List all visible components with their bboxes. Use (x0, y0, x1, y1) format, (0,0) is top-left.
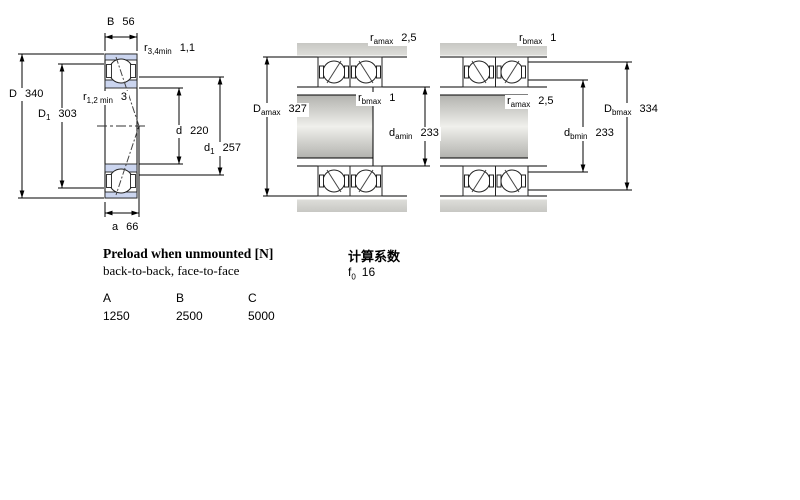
dim-value: 1,1 (180, 42, 195, 54)
calculation-factors-title: 计算系数 (348, 246, 400, 265)
dim-value: 16 (362, 265, 375, 279)
dim-subscript: amax (261, 108, 281, 117)
dim-symbol: D (253, 103, 261, 115)
dim-subscript: amax (511, 100, 531, 109)
dim-value: 233 (420, 127, 438, 139)
dim-value: 334 (640, 103, 658, 115)
preload-table: A B C 1250 2500 5000 (103, 291, 320, 323)
label-d: d220 (174, 125, 210, 138)
preload-value: 2500 (176, 309, 248, 323)
dim-symbol: D (604, 103, 612, 115)
label-B: B56 (105, 16, 137, 29)
dimension-lines-face-to-face (583, 62, 627, 190)
dim-subscript: bmax (362, 97, 382, 106)
preload-value: 1250 (103, 309, 176, 323)
label-d-amin: damin233 (387, 127, 441, 141)
label-D-amax: Damax327 (251, 103, 309, 117)
dim-subscript: 3,4min (148, 47, 172, 56)
preload-title: Preload when unmounted [N] (103, 246, 273, 262)
housing-bottom (297, 200, 407, 213)
dim-value: 233 (595, 127, 613, 139)
dim-value: 2,5 (401, 32, 416, 44)
dim-subscript: amax (374, 37, 394, 46)
dim-value: 220 (190, 125, 208, 137)
dim-subscript: 1,2 min (87, 96, 113, 105)
housing-bottom (440, 200, 547, 213)
preload-col-header: C (248, 291, 320, 305)
dim-symbol: D (9, 88, 17, 100)
dim-symbol: a (112, 221, 118, 233)
dim-symbol: B (107, 16, 114, 28)
bearing-pair-bottom (318, 166, 382, 196)
label-r12min: r1,2 min3 (81, 91, 129, 105)
dim-value: 340 (25, 88, 43, 100)
preload-value: 5000 (248, 309, 320, 323)
label-f0: f016 (348, 265, 375, 281)
dim-subscript: bmin (570, 132, 587, 141)
dim-subscript: amin (395, 132, 412, 141)
dim-value: 56 (122, 16, 134, 28)
label-r-bmax-top: rbmax1 (517, 32, 558, 46)
dim-value: 303 (58, 108, 76, 120)
label-r-amax-top: ramax2,5 (368, 32, 419, 46)
label-d1: d1257 (202, 142, 243, 156)
preload-col-header: B (176, 291, 248, 305)
label-r-bmax: rbmax1 (356, 92, 397, 106)
label-D-bmax: Dbmax334 (602, 103, 660, 117)
dim-value: 327 (289, 103, 307, 115)
dim-subscript: 1 (210, 147, 214, 156)
label-D: D340 (7, 88, 45, 101)
dim-value: 3 (121, 91, 127, 103)
dim-subscript: bmax (612, 108, 632, 117)
dim-value: 66 (126, 221, 138, 233)
dim-subscript: 0 (351, 272, 355, 281)
label-d-bmin: dbmin233 (562, 127, 616, 141)
dim-value: 1 (389, 92, 395, 104)
dim-value: 257 (223, 142, 241, 154)
label-a: a66 (110, 221, 140, 234)
bearing-pair-top (318, 57, 382, 87)
label-D1: D1303 (36, 108, 79, 122)
bearing-drawing-page: B56 r3,4min1,1 D340 D1303 r1,2 min3 d220… (0, 0, 800, 500)
dim-symbol: d (176, 125, 182, 137)
label-r34min: r3,4min1,1 (142, 42, 197, 56)
label-r-amax: ramax2,5 (505, 95, 556, 109)
dim-subscript: bmax (523, 37, 543, 46)
preload-subtitle: back-to-back, face-to-face (103, 263, 239, 279)
preload-col-header: A (103, 291, 176, 305)
dim-symbol: D (38, 108, 46, 120)
dim-value: 2,5 (538, 95, 553, 107)
bearing-pair-bottom (463, 166, 528, 196)
dim-subscript: 1 (46, 113, 50, 122)
bearing-pair-top (463, 57, 528, 87)
dim-value: 1 (550, 32, 556, 44)
